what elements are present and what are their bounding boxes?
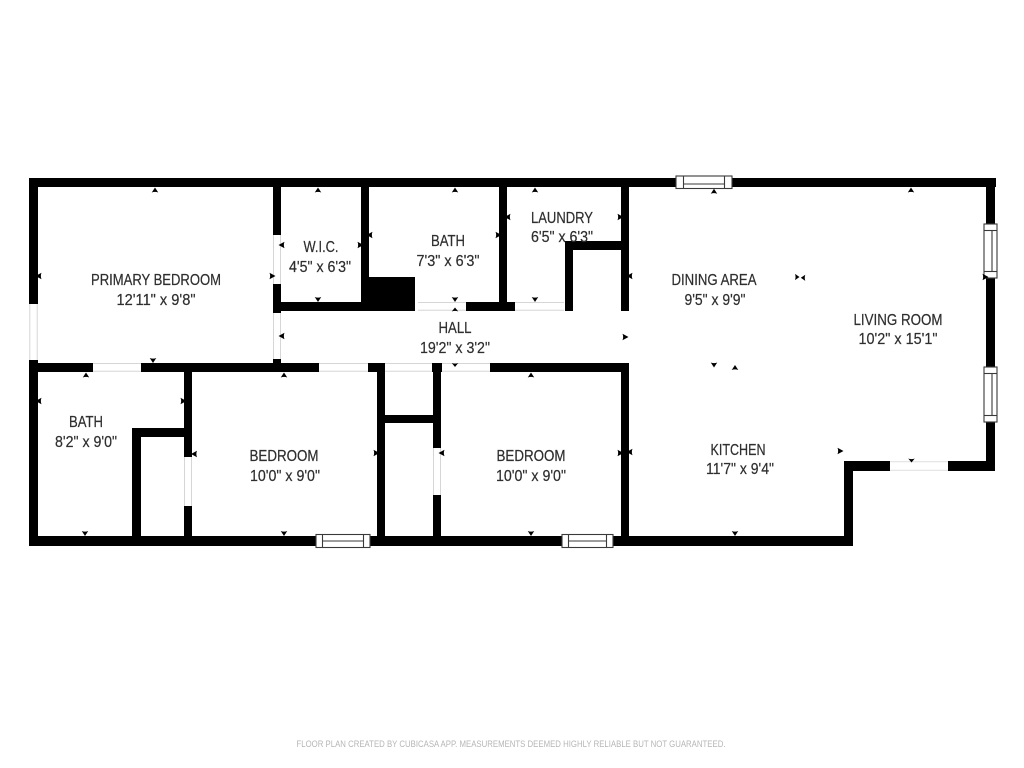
- svg-text:9'5" x 9'9": 9'5" x 9'9": [685, 292, 746, 309]
- svg-text:7'3" x 6'3": 7'3" x 6'3": [417, 253, 480, 270]
- svg-text:12'11" x 9'8": 12'11" x 9'8": [117, 292, 196, 309]
- svg-text:BEDROOM: BEDROOM: [250, 448, 319, 465]
- svg-text:FLOOR PLAN CREATED BY CUBICASA: FLOOR PLAN CREATED BY CUBICASA APP. MEAS…: [297, 739, 726, 749]
- svg-text:10'0" x 9'0": 10'0" x 9'0": [250, 468, 320, 485]
- svg-text:6'5" x 6'3": 6'5" x 6'3": [531, 229, 593, 246]
- svg-text:LIVING ROOM: LIVING ROOM: [854, 312, 943, 329]
- svg-text:KITCHEN: KITCHEN: [711, 442, 766, 459]
- svg-text:BEDROOM: BEDROOM: [497, 448, 566, 465]
- svg-text:DINING AREA: DINING AREA: [672, 272, 757, 289]
- svg-text:LAUNDRY: LAUNDRY: [531, 210, 593, 227]
- svg-text:11'7" x 9'4": 11'7" x 9'4": [706, 461, 774, 478]
- svg-text:4'5" x 6'3": 4'5" x 6'3": [289, 259, 351, 276]
- svg-text:10'0" x 9'0": 10'0" x 9'0": [496, 468, 566, 485]
- svg-text:19'2" x 3'2": 19'2" x 3'2": [420, 340, 490, 357]
- svg-text:8'2" x 9'0": 8'2" x 9'0": [55, 434, 117, 451]
- svg-text:10'2" x 15'1": 10'2" x 15'1": [859, 331, 938, 348]
- svg-text:PRIMARY BEDROOM: PRIMARY BEDROOM: [91, 272, 221, 289]
- svg-text:W.I.C.: W.I.C.: [304, 239, 339, 256]
- svg-text:BATH: BATH: [69, 414, 103, 431]
- svg-text:BATH: BATH: [431, 233, 465, 250]
- svg-text:HALL: HALL: [439, 320, 472, 337]
